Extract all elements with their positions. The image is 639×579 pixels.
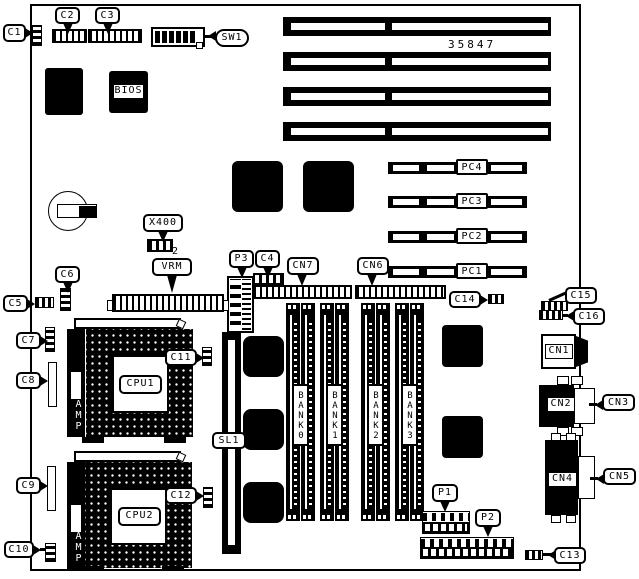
x400-subscript: 2	[172, 246, 178, 257]
simm-contacts	[303, 515, 313, 519]
callout-c14: C14	[449, 291, 481, 308]
isa-slot-key	[291, 93, 385, 100]
cn2-label: CN2	[547, 397, 575, 412]
cn1-port-shell	[576, 336, 588, 367]
simm-contacts	[378, 515, 388, 519]
simm-contacts	[412, 305, 422, 309]
isa-slot-1	[283, 17, 551, 36]
isa-slot-key	[392, 23, 548, 30]
pci-slot-label-pc2: PC2	[456, 228, 488, 244]
part-number: 35847	[448, 38, 496, 51]
callout-c2-pointer	[63, 23, 73, 34]
pci-slot-key	[393, 269, 419, 275]
pci-slot-key	[427, 199, 454, 205]
callout-c3-pointer	[103, 23, 113, 34]
right-chip-1	[442, 325, 483, 367]
cn1-label: CN1	[545, 344, 573, 359]
component-c16	[539, 310, 563, 320]
callout-cn7-pointer	[297, 274, 307, 286]
callout-x400: X400	[143, 214, 183, 232]
isa-slot-key	[392, 58, 548, 65]
pci-slot-key	[393, 199, 419, 205]
bank0-label: BANK0	[292, 384, 309, 446]
callout-p1: P1	[432, 484, 458, 502]
isa-slot-key	[291, 58, 385, 65]
pci-slot-label-pc3: PC3	[456, 193, 488, 209]
pci-slot-key	[427, 269, 454, 275]
pci-slot-label-pc1: PC1	[456, 263, 488, 279]
callout-c5: C5	[3, 295, 28, 312]
callout-c8: C8	[16, 372, 41, 389]
component-c13	[525, 550, 543, 560]
callout-cn6: CN6	[357, 257, 389, 275]
chip-unlabeled	[45, 68, 83, 115]
callout-p3: P3	[229, 250, 254, 268]
pci-slot-key	[491, 269, 522, 275]
callout-c5-pointer	[27, 299, 35, 309]
simm-contacts	[412, 515, 422, 519]
cn2-mount-tab	[571, 376, 583, 385]
callout-c11: C11	[165, 349, 197, 366]
callout-c9: C9	[16, 477, 41, 494]
dip-switch-positions	[155, 31, 195, 43]
isa-slot-2	[283, 52, 551, 71]
connector-p3	[227, 276, 254, 333]
component-c12	[203, 487, 213, 508]
callout-c12-pointer	[196, 491, 204, 501]
pci-slot-key	[427, 165, 454, 171]
pci-slot-label-pc4: PC4	[456, 159, 488, 175]
callout-c14-pointer	[480, 295, 488, 305]
isa-slot-key	[392, 93, 548, 100]
cpu1-socket-foot	[82, 437, 104, 443]
center-chip-2	[243, 409, 284, 450]
component-c14	[488, 294, 504, 304]
callout-p2-pointer	[483, 526, 493, 537]
connector-p3-pins	[242, 279, 251, 330]
simm-contacts	[384, 319, 387, 505]
callout-c1: C1	[3, 24, 26, 42]
callout-c12: C12	[165, 487, 197, 504]
simm-contacts	[288, 515, 298, 519]
connector-p1-terminals	[423, 522, 469, 533]
callout-c1-pointer	[25, 28, 33, 38]
cn4-mount-tab	[566, 433, 576, 441]
battery-clip-contact	[79, 206, 96, 217]
connector-p2-terminals	[421, 547, 513, 558]
simm-contacts	[337, 515, 347, 519]
vrm-connector-tab	[223, 300, 229, 311]
sl1-label: SL1	[212, 432, 246, 449]
cpu2-label: CPU2	[118, 507, 161, 526]
connector-p2-pins	[421, 539, 513, 547]
callout-vrm: VRM	[152, 258, 192, 276]
callout-c8-pointer	[40, 376, 48, 386]
callout-p2: P2	[475, 509, 501, 527]
qfp-chip-2	[303, 161, 354, 212]
pci-slot-key	[393, 165, 419, 171]
simm-contacts	[303, 305, 313, 309]
cpu1-socket-foot	[164, 437, 186, 443]
cpu1-label: CPU1	[119, 375, 162, 394]
pci-slot-key	[393, 234, 419, 240]
callout-c11-pointer	[196, 353, 204, 363]
callout-c3: C3	[95, 7, 120, 24]
simm-contacts	[322, 305, 332, 309]
simm-contacts	[397, 305, 407, 309]
cn4-mount-tab	[551, 515, 561, 523]
isa-slot-4	[283, 122, 551, 141]
center-chip-3	[243, 482, 284, 523]
center-chip-1	[243, 336, 284, 377]
component-c8	[48, 362, 57, 407]
callout-c6-pointer	[63, 282, 73, 293]
simm-contacts	[363, 515, 373, 519]
callout-c4-pointer	[263, 267, 273, 278]
vrm-connector	[112, 294, 224, 312]
connector-p3-pins	[230, 279, 241, 330]
simm-contacts	[288, 305, 298, 309]
vrm-connector-tab	[107, 300, 113, 311]
callout-c16: C16	[573, 308, 605, 325]
bank2-label: BANK2	[367, 384, 384, 446]
callout-c6: C6	[55, 266, 80, 283]
component-c9	[47, 466, 56, 511]
callout-c10: C10	[4, 541, 34, 558]
callout-x400-pointer	[158, 231, 168, 242]
callout-cn7: CN7	[287, 257, 319, 275]
cpu2-socket-foot	[82, 566, 104, 571]
simm-contacts	[397, 515, 407, 519]
simm-contacts	[378, 305, 388, 309]
connector-cn7	[252, 285, 352, 299]
callout-vrm-pointer	[167, 275, 177, 293]
callout-cn3: CN3	[602, 394, 635, 411]
simm-contacts	[418, 319, 421, 505]
cn4-mount-tab	[551, 433, 561, 441]
component-c10	[45, 543, 56, 562]
callout-c7-pointer	[40, 336, 48, 346]
cn2-db-connector	[574, 388, 595, 424]
component-c5	[35, 297, 54, 308]
callout-c15: C15	[565, 287, 597, 304]
cn4-label: CN4	[548, 472, 577, 487]
pci-slot-key	[427, 234, 454, 240]
simm-contacts	[322, 515, 332, 519]
simm-contacts	[309, 319, 312, 505]
connector-p1-pins	[423, 513, 469, 521]
connector-c1	[32, 25, 42, 46]
callout-c7: C7	[16, 332, 41, 349]
callout-p3-pointer	[237, 267, 247, 278]
qfp-chip-1	[232, 161, 283, 212]
cn4-mount-tab	[566, 515, 576, 523]
callout-c13: C13	[554, 547, 586, 564]
connector-p2	[420, 537, 514, 559]
cpu2-socket-foot	[162, 566, 184, 571]
bios-chip-label: BIOS	[113, 84, 144, 99]
cpu2-amp-label: AMP	[67, 526, 85, 568]
cn2-mount-tab	[557, 376, 569, 385]
pci-slot-key	[491, 234, 522, 240]
isa-slot-key	[392, 128, 548, 135]
callout-c10-pointer	[33, 545, 41, 555]
connector-p1	[422, 511, 470, 534]
pci-slot-key	[491, 199, 522, 205]
bank1-label: BANK1	[326, 384, 343, 446]
simm-contacts	[343, 319, 346, 505]
callout-c4: C4	[255, 250, 280, 268]
simm-contacts	[337, 305, 347, 309]
bank3-label: BANK3	[401, 384, 418, 446]
pci-slot-key	[491, 165, 522, 171]
callout-c9-pointer	[40, 481, 48, 491]
connector-c3-header	[88, 29, 142, 43]
callout-p1-pointer	[440, 501, 450, 512]
simm-contacts	[363, 305, 373, 309]
cpu1-amp-label: AMP	[67, 394, 85, 436]
callout-cn6-pointer	[367, 274, 377, 286]
right-chip-2	[442, 416, 483, 458]
callout-sw1: SW1	[215, 29, 249, 47]
callout-cn5: CN5	[603, 468, 636, 485]
cpu1-retention-bar	[74, 318, 181, 329]
cpu2-retention-bar	[74, 451, 181, 462]
isa-slot-key	[291, 23, 385, 30]
callout-c2: C2	[55, 7, 80, 24]
dip-switch-sw1-tab	[196, 42, 203, 49]
connector-cn6	[355, 285, 446, 299]
isa-slot-key	[291, 128, 385, 135]
motherboard-diagram: 35847 PC4 PC3 PC2 PC1 C1 C2 C3 SW1	[0, 0, 639, 579]
isa-slot-3	[283, 87, 551, 106]
